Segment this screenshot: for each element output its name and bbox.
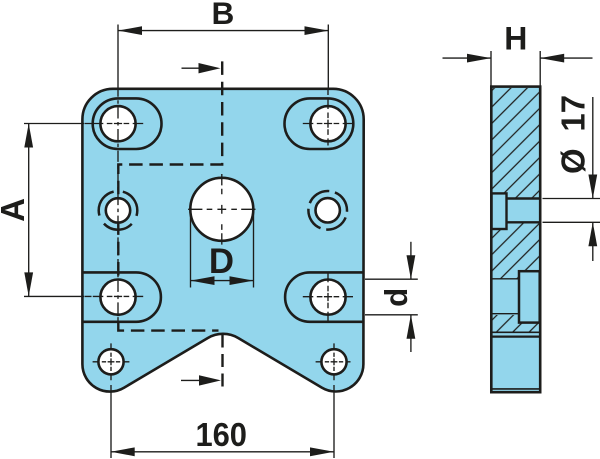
svg-text:D: D [209,242,234,281]
svg-text:B: B [211,0,234,31]
svg-text:A: A [0,198,31,222]
svg-text:Ø 17: Ø 17 [555,95,592,174]
svg-text:H: H [504,20,527,56]
svg-text:160: 160 [195,417,247,454]
svg-text:d: d [379,288,414,307]
